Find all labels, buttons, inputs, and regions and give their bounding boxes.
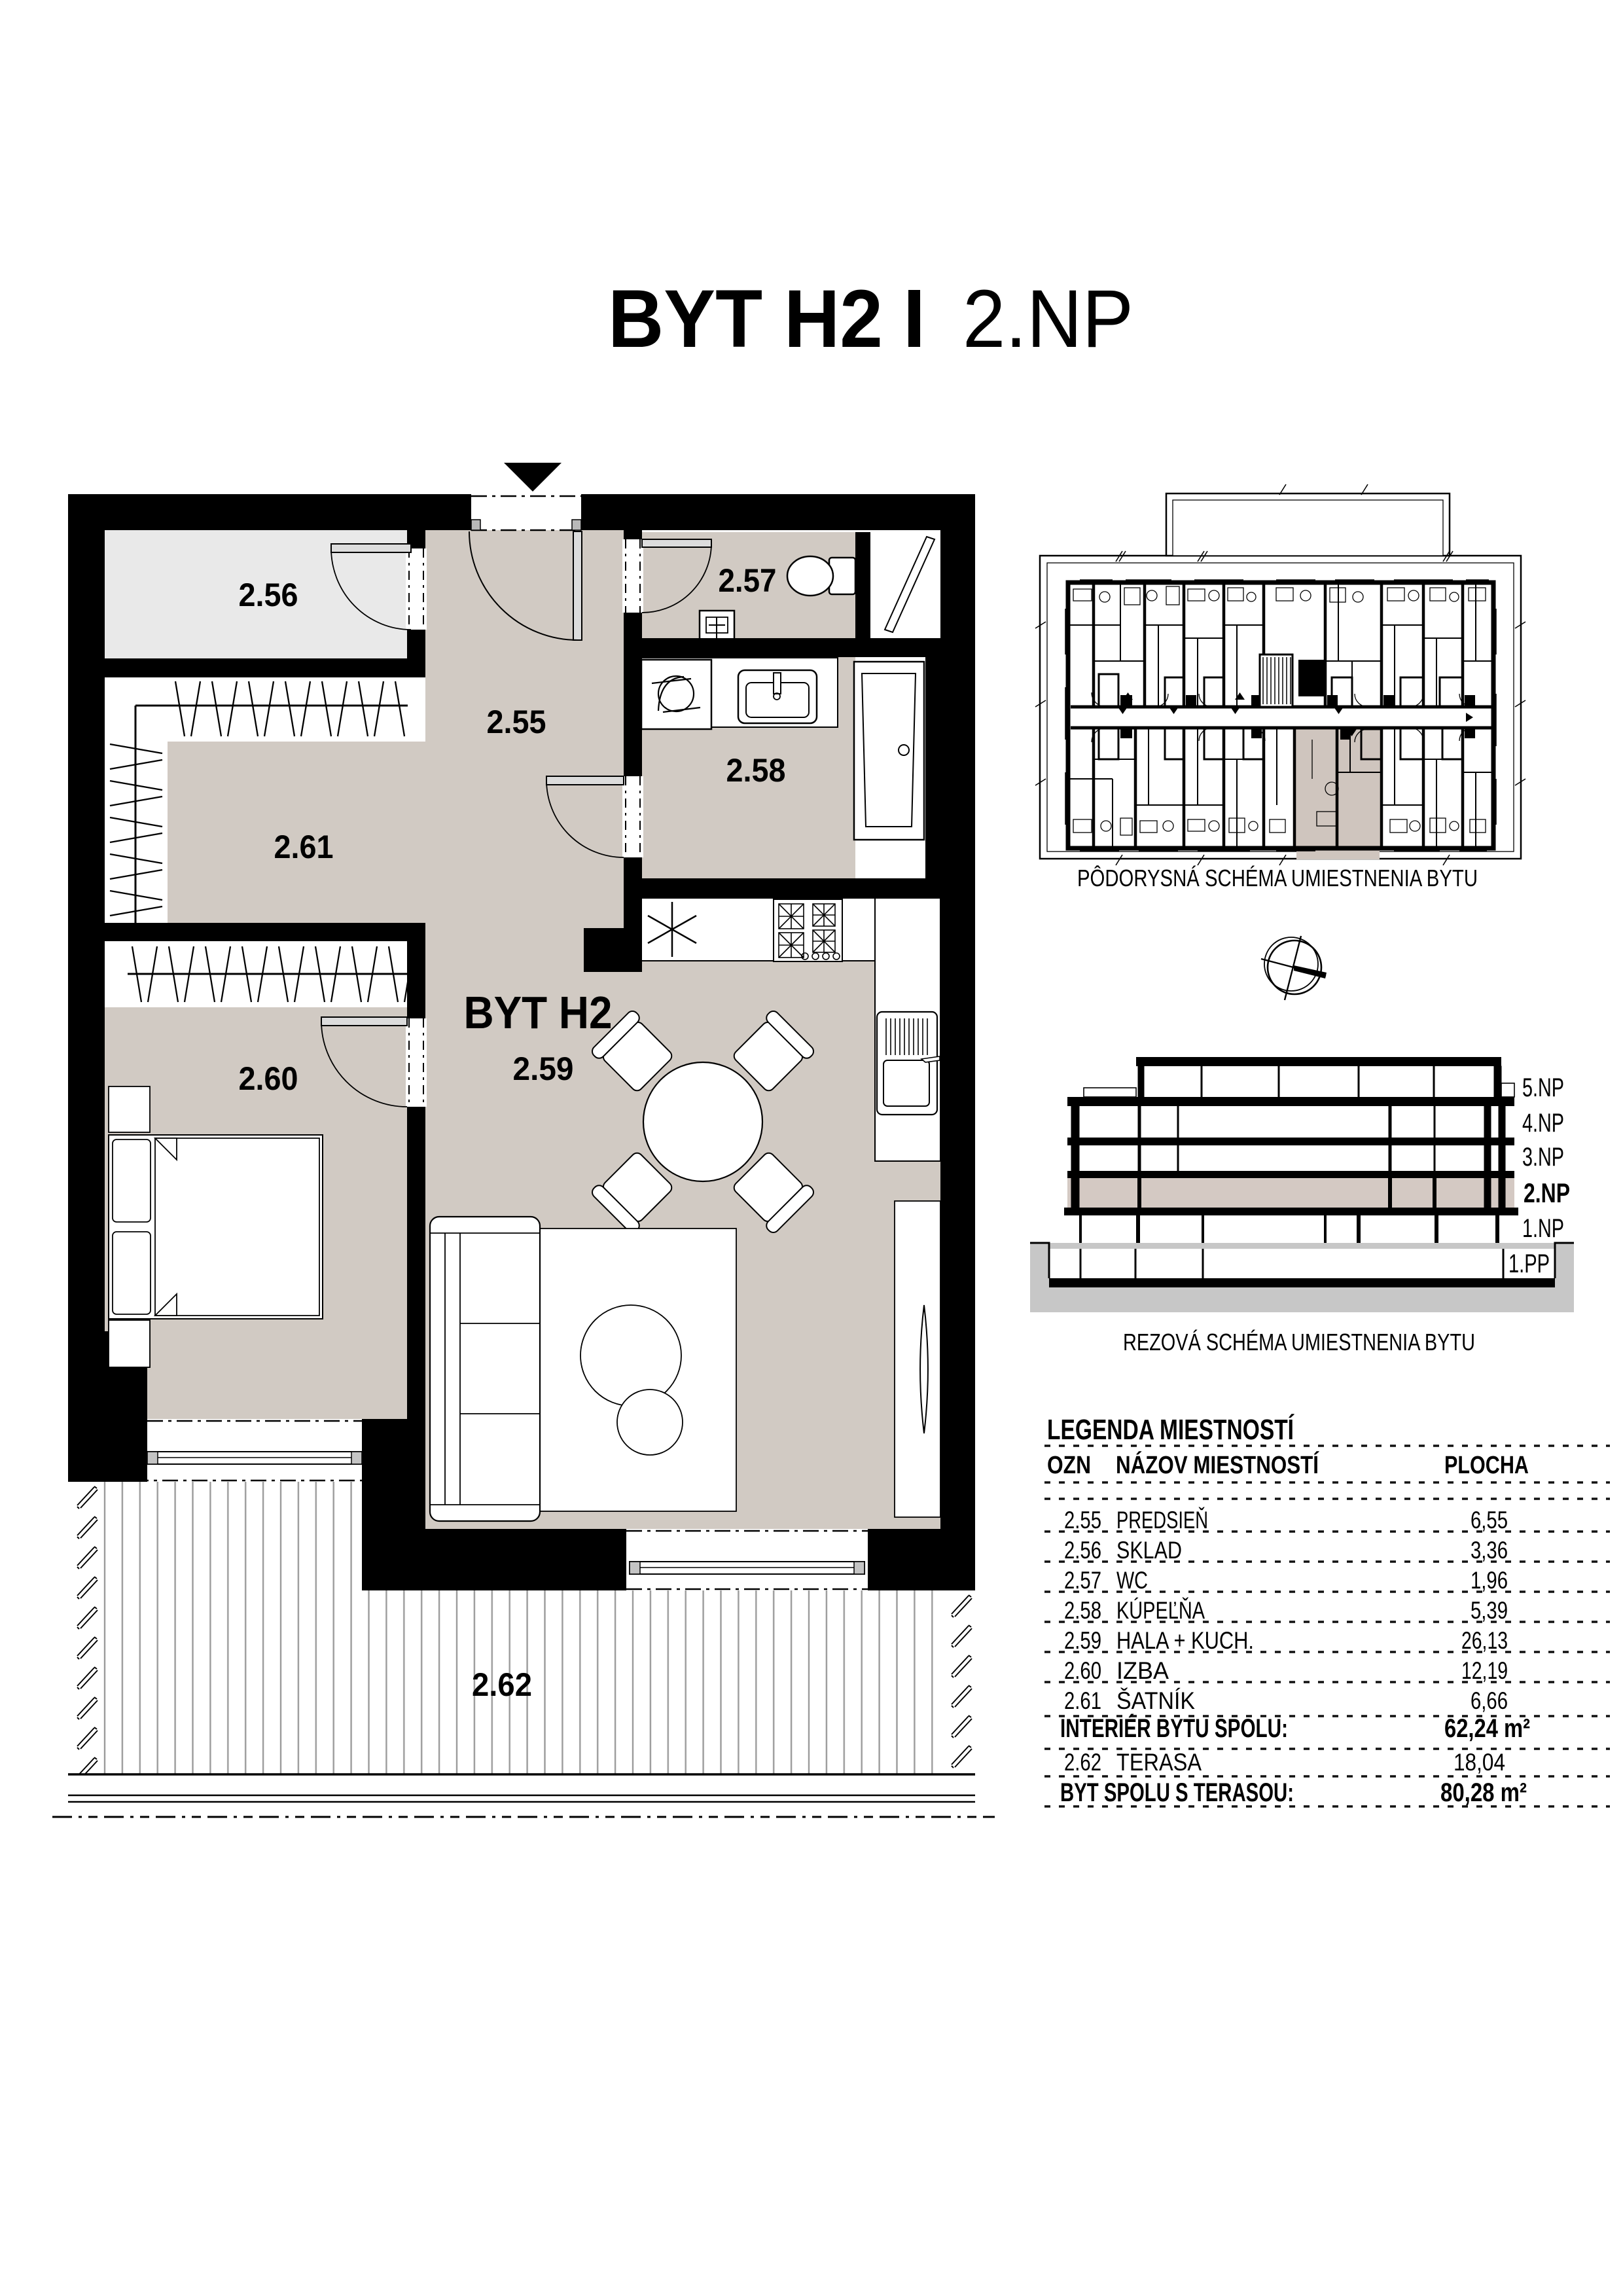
svg-text:26,13: 26,13 <box>1461 1627 1508 1654</box>
svg-text:INTERIÉR BYTU SPOLU:: INTERIÉR BYTU SPOLU: <box>1060 1713 1288 1743</box>
svg-text:OZN: OZN <box>1047 1452 1091 1479</box>
svg-text:2.62: 2.62 <box>1064 1749 1101 1776</box>
svg-text:2.55: 2.55 <box>1064 1507 1101 1534</box>
svg-text:2.61: 2.61 <box>1064 1687 1101 1714</box>
svg-text:3,36: 3,36 <box>1471 1537 1508 1564</box>
svg-text:5,39: 5,39 <box>1471 1597 1508 1624</box>
svg-text:BYT SPOLU S TERASOU:: BYT SPOLU S TERASOU: <box>1060 1778 1294 1807</box>
svg-text:62,24 m²: 62,24 m² <box>1444 1714 1530 1743</box>
svg-text:2.57: 2.57 <box>1064 1567 1101 1594</box>
svg-text:2.56: 2.56 <box>1064 1537 1101 1564</box>
svg-text:HALA + KUCH.: HALA + KUCH. <box>1116 1627 1254 1654</box>
svg-text:2.60: 2.60 <box>1064 1657 1101 1684</box>
svg-text:PLOCHA: PLOCHA <box>1444 1452 1529 1479</box>
svg-text:2.55: 2.55 <box>487 704 546 740</box>
svg-text:2.NP: 2.NP <box>1524 1177 1570 1208</box>
svg-text:80,28 m²: 80,28 m² <box>1440 1778 1527 1807</box>
svg-text:1,96: 1,96 <box>1471 1567 1508 1594</box>
svg-text:LEGENDA MIESTNOSTÍ: LEGENDA MIESTNOSTÍ <box>1047 1413 1294 1446</box>
svg-text:2.61: 2.61 <box>274 829 334 865</box>
svg-text:REZOVÁ SCHÉMA UMIESTNENIA BYTU: REZOVÁ SCHÉMA UMIESTNENIA BYTU <box>1123 1329 1475 1355</box>
svg-text:NÁZOV MIESTNOSTÍ: NÁZOV MIESTNOSTÍ <box>1116 1450 1319 1479</box>
svg-text:WC: WC <box>1116 1567 1148 1594</box>
svg-text:ŠATNÍK: ŠATNÍK <box>1116 1687 1195 1714</box>
svg-text:TERASA: TERASA <box>1116 1749 1202 1776</box>
svg-text:KÚPEĽŇA: KÚPEĽŇA <box>1116 1597 1205 1624</box>
svg-text:2.58: 2.58 <box>1064 1597 1101 1624</box>
svg-text:6,66: 6,66 <box>1471 1687 1508 1714</box>
svg-text:PREDSIEŇ: PREDSIEŇ <box>1116 1507 1208 1534</box>
svg-text:IZBA: IZBA <box>1116 1657 1169 1684</box>
svg-text:2.58: 2.58 <box>726 752 786 789</box>
svg-text:4.NP: 4.NP <box>1522 1109 1564 1138</box>
svg-text:2.NP: 2.NP <box>963 274 1133 365</box>
svg-text:18,04: 18,04 <box>1454 1749 1505 1776</box>
svg-text:PÔDORYSNÁ SCHÉMA UMIESTNENIA B: PÔDORYSNÁ SCHÉMA UMIESTNENIA BYTU <box>1077 865 1478 891</box>
svg-text:2.62: 2.62 <box>472 1666 532 1703</box>
svg-text:12,19: 12,19 <box>1461 1657 1508 1684</box>
svg-text:3.NP: 3.NP <box>1522 1143 1564 1172</box>
svg-text:5.NP: 5.NP <box>1522 1073 1564 1102</box>
svg-text:BYT H2: BYT H2 <box>608 274 883 365</box>
svg-text:2.56: 2.56 <box>239 577 298 613</box>
svg-text:2.57: 2.57 <box>719 562 777 599</box>
svg-text:1.NP: 1.NP <box>1522 1214 1564 1243</box>
svg-text:2.60: 2.60 <box>239 1060 298 1097</box>
svg-text:1.PP: 1.PP <box>1508 1249 1550 1278</box>
svg-text:2.59: 2.59 <box>513 1050 574 1087</box>
svg-text:SKLAD: SKLAD <box>1116 1537 1182 1564</box>
svg-text:2.59: 2.59 <box>1064 1627 1101 1654</box>
svg-text:6,55: 6,55 <box>1471 1507 1508 1534</box>
svg-text:BYT H2: BYT H2 <box>464 987 613 1038</box>
